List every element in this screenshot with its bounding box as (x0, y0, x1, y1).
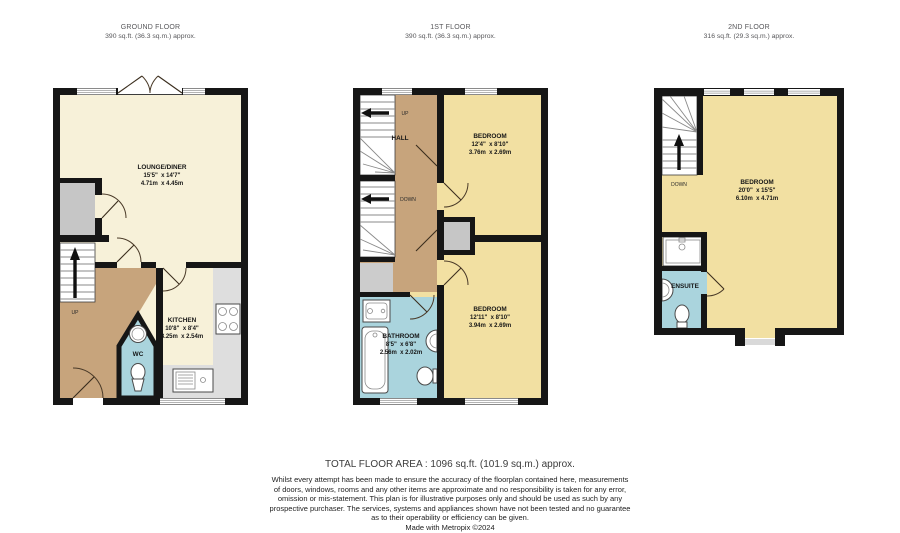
first-floor-area: 390 sq.ft. (36.3 sq.m.) approx. (353, 32, 548, 41)
stairs-down (662, 96, 697, 175)
bathroom-dims-ft: 8'5" x 6'8" (386, 342, 416, 348)
disclaimer-line: of doors, windows, rooms and any other i… (0, 485, 900, 495)
bedroom1-name: BEDROOM (473, 133, 506, 140)
ground-floor-header: GROUND FLOOR 390 sq.ft. (36.3 sq.m.) app… (53, 23, 248, 41)
first-floor-header: 1ST FLOOR 390 sq.ft. (36.3 sq.m.) approx… (353, 23, 548, 41)
second-floor-title: 2ND FLOOR (654, 23, 844, 32)
first-floor-title: 1ST FLOOR (353, 23, 548, 32)
ground-floor-plan: LOUNGE/DINER 15'5" x 14'7" 4.71m x 4.45m… (53, 74, 248, 405)
closet (444, 222, 470, 250)
toilet (675, 305, 689, 328)
stairs-up (60, 243, 95, 302)
bedroom1-dims-m: 3.76m x 2.69m (469, 150, 511, 156)
bathroom-dims-m: 2.56m x 2.02m (380, 350, 422, 356)
bedroom2-name: BEDROOM (473, 306, 506, 313)
bedroom-name: BEDROOM (740, 179, 773, 186)
wc-label: WC (133, 351, 144, 358)
bedroom-dims-m: 6.10m x 4.71m (736, 196, 778, 202)
disclaimer-line: prospective purchaser. The services, sys… (0, 504, 900, 514)
first-floor-plan: UP HALL DOWN BEDROOM 12'4" x 8'10" 3.76m… (353, 74, 548, 405)
bedroom1-dims-ft: 12'4" x 8'10" (472, 142, 509, 148)
down-label: DOWN (671, 182, 687, 188)
stairs-down (360, 181, 395, 257)
up-label: UP (72, 310, 80, 316)
hob (216, 304, 240, 334)
hall-label: HALL (391, 135, 408, 142)
bedroom2-dims-m: 3.94m x 2.69m (469, 323, 511, 329)
kitchen-name: KITCHEN (168, 317, 197, 324)
vanity-basin (363, 300, 390, 322)
kitchen-sink (173, 369, 213, 392)
bedroom2-dims-ft: 12'11" x 8'10" (470, 315, 510, 321)
toilet (417, 367, 437, 385)
floorplan-canvas: { "colors": { "wall": "#161616", "lounge… (0, 0, 900, 524)
ground-floor-area: 390 sq.ft. (36.3 sq.m.) approx. (53, 32, 248, 41)
second-floor-area: 316 sq.ft. (29.3 sq.m.) approx. (654, 32, 844, 41)
lounge-name: LOUNGE/DINER (138, 164, 187, 171)
second-floor-plan: DOWN BEDROOM 20'0" x 15'5" 6.10m x 4.71m… (654, 88, 844, 358)
disclaimer-line: Whilst every attempt has been made to en… (0, 475, 900, 485)
storage-cupboard (60, 183, 95, 235)
disclaimer-line: as to their operability or efficiency ca… (0, 513, 900, 523)
lounge-dims-ft: 15'5" x 14'7" (144, 173, 181, 179)
shower (663, 237, 703, 266)
stairs-up (360, 95, 395, 175)
ensuite-label: ENSUITE (671, 283, 699, 290)
disclaimer-line: omission or mis-statement. This plan is … (0, 494, 900, 504)
down-label: DOWN (400, 197, 416, 203)
ground-floor-title: GROUND FLOOR (53, 23, 248, 32)
airing-cupboard (360, 263, 393, 292)
credit-line: Made with Metropix ©2024 (0, 523, 900, 533)
french-doors (118, 76, 182, 95)
total-floor-area: TOTAL FLOOR AREA : 1096 sq.ft. (101.9 sq… (0, 459, 900, 470)
lounge-dims-m: 4.71m x 4.45m (141, 181, 183, 187)
second-floor-header: 2ND FLOOR 316 sq.ft. (29.3 sq.m.) approx… (654, 23, 844, 41)
kitchen-dims-ft: 10'8" x 8'4" (165, 326, 199, 332)
up-label: UP (402, 111, 410, 117)
kitchen-dims-m: 3.25m x 2.54m (161, 334, 203, 340)
bedroom-dims-ft: 20'0" x 15'5" (739, 188, 776, 194)
bathroom-name: BATHROOM (382, 333, 419, 340)
